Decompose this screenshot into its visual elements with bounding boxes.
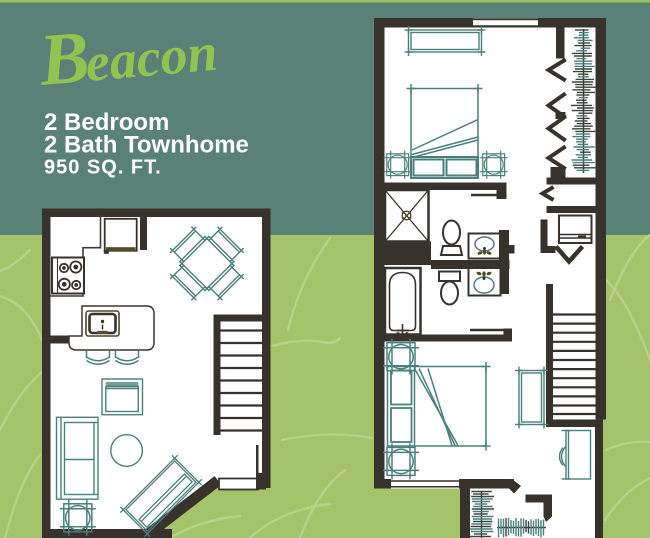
svg-text:950 SQ. FT.: 950 SQ. FT. xyxy=(44,157,162,179)
svg-text:2 Bath Townhome: 2 Bath Townhome xyxy=(44,132,249,159)
